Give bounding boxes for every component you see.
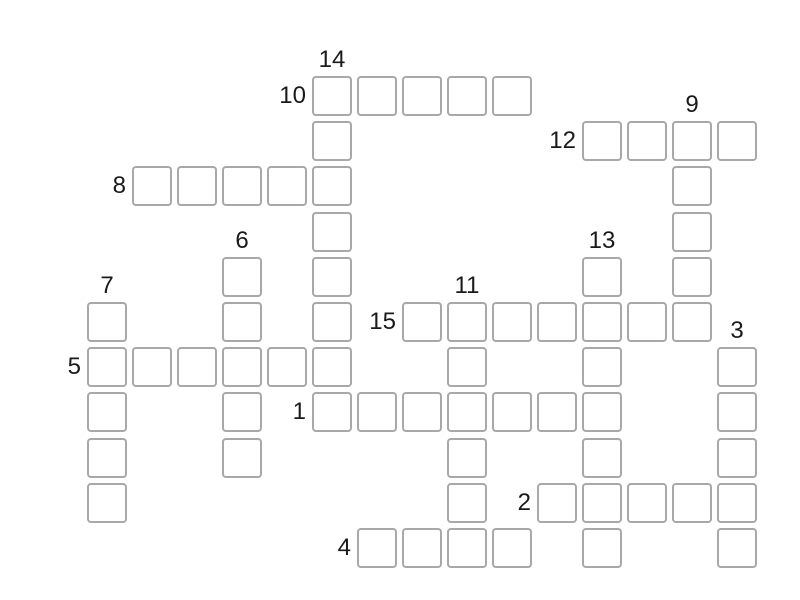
crossword-cell[interactable] <box>87 302 127 342</box>
crossword-cell[interactable] <box>447 528 487 568</box>
crossword-cell[interactable] <box>222 257 262 297</box>
crossword-cell[interactable] <box>672 212 712 252</box>
crossword-cell[interactable] <box>582 257 622 297</box>
crossword-cell[interactable] <box>627 121 667 161</box>
crossword-cell[interactable] <box>87 347 127 387</box>
clue-number-4: 4 <box>281 528 351 568</box>
crossword-cell[interactable] <box>87 438 127 478</box>
crossword-cell[interactable] <box>312 347 352 387</box>
crossword-cell[interactable] <box>267 166 307 206</box>
crossword-cell[interactable] <box>222 438 262 478</box>
crossword-cell[interactable] <box>582 392 622 432</box>
crossword-cell[interactable] <box>537 392 577 432</box>
crossword-cell[interactable] <box>222 347 262 387</box>
crossword-cell[interactable] <box>267 347 307 387</box>
crossword-cell[interactable] <box>222 166 262 206</box>
crossword-grid: 101412986137111553124 <box>0 0 800 600</box>
crossword-cell[interactable] <box>672 166 712 206</box>
crossword-cell[interactable] <box>177 166 217 206</box>
crossword-cell[interactable] <box>672 483 712 523</box>
crossword-cell[interactable] <box>87 392 127 432</box>
crossword-cell[interactable] <box>717 438 757 478</box>
clue-number-2: 2 <box>461 483 531 523</box>
crossword-cell[interactable] <box>312 76 352 116</box>
crossword-cell[interactable] <box>402 76 442 116</box>
clue-number-11: 11 <box>437 271 497 301</box>
clue-number-15: 15 <box>326 302 396 342</box>
crossword-cell[interactable] <box>357 392 397 432</box>
clue-number-12: 12 <box>506 121 576 161</box>
crossword-cell[interactable] <box>447 438 487 478</box>
crossword-cell[interactable] <box>357 528 397 568</box>
crossword-cell[interactable] <box>582 302 622 342</box>
crossword-cell[interactable] <box>582 483 622 523</box>
crossword-cell[interactable] <box>582 347 622 387</box>
crossword-cell[interactable] <box>717 528 757 568</box>
crossword-cell[interactable] <box>132 166 172 206</box>
crossword-cell[interactable] <box>177 347 217 387</box>
clue-number-9: 9 <box>662 90 722 120</box>
clue-number-5: 5 <box>11 347 81 387</box>
crossword-cell[interactable] <box>582 121 622 161</box>
crossword-cell[interactable] <box>537 302 577 342</box>
crossword-cell[interactable] <box>447 392 487 432</box>
crossword-cell[interactable] <box>672 121 712 161</box>
crossword-cell[interactable] <box>312 212 352 252</box>
clue-number-1: 1 <box>236 392 306 432</box>
crossword-cell[interactable] <box>222 302 262 342</box>
crossword-cell[interactable] <box>402 302 442 342</box>
crossword-cell[interactable] <box>492 302 532 342</box>
crossword-cell[interactable] <box>447 302 487 342</box>
crossword-cell[interactable] <box>672 302 712 342</box>
clue-number-8: 8 <box>56 166 126 206</box>
crossword-cell[interactable] <box>672 257 712 297</box>
clue-number-7: 7 <box>77 271 137 301</box>
clue-number-3: 3 <box>707 316 767 346</box>
crossword-cell[interactable] <box>492 528 532 568</box>
crossword-cell[interactable] <box>402 392 442 432</box>
crossword-cell[interactable] <box>537 483 577 523</box>
crossword-cell[interactable] <box>492 392 532 432</box>
crossword-cell[interactable] <box>492 76 532 116</box>
crossword-cell[interactable] <box>717 483 757 523</box>
crossword-cell[interactable] <box>582 438 622 478</box>
crossword-cell[interactable] <box>312 257 352 297</box>
crossword-cell[interactable] <box>312 392 352 432</box>
crossword-cell[interactable] <box>87 483 127 523</box>
crossword-cell[interactable] <box>132 347 172 387</box>
crossword-cell[interactable] <box>717 392 757 432</box>
crossword-cell[interactable] <box>312 166 352 206</box>
crossword-cell[interactable] <box>312 121 352 161</box>
clue-number-6: 6 <box>212 226 272 256</box>
clue-number-10: 10 <box>236 76 306 116</box>
crossword-cell[interactable] <box>357 76 397 116</box>
crossword-cell[interactable] <box>717 347 757 387</box>
crossword-cell[interactable] <box>627 302 667 342</box>
clue-number-13: 13 <box>572 226 632 256</box>
crossword-cell[interactable] <box>627 483 667 523</box>
clue-number-14: 14 <box>302 45 362 75</box>
crossword-cell[interactable] <box>447 347 487 387</box>
crossword-cell[interactable] <box>582 528 622 568</box>
crossword-cell[interactable] <box>447 76 487 116</box>
crossword-cell[interactable] <box>402 528 442 568</box>
crossword-cell[interactable] <box>717 121 757 161</box>
